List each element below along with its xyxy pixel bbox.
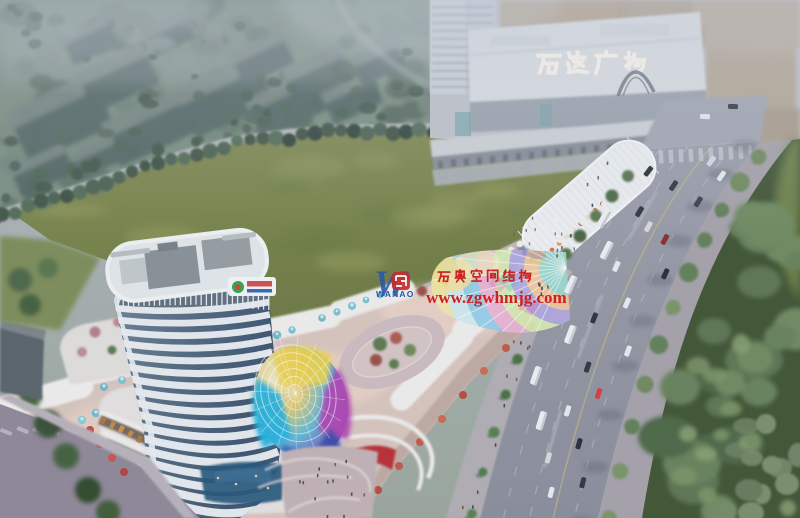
svg-text:www.zgwhmjg.com: www.zgwhmjg.com: [426, 288, 567, 307]
svg-text:WANAO: WANAO: [376, 289, 415, 299]
